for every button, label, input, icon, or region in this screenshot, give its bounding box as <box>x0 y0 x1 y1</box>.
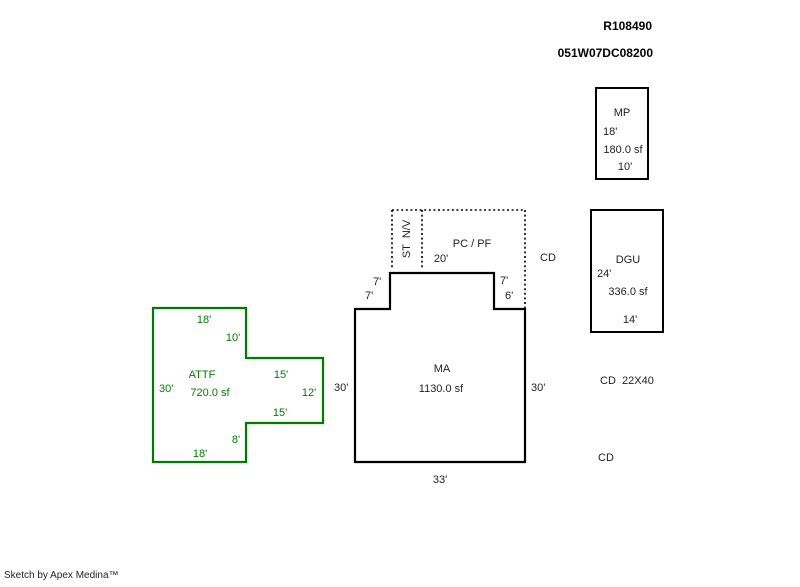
attf-area: 720.0 sf <box>190 387 229 399</box>
ma-bottom-width-dim: 33' <box>433 474 447 486</box>
parcel-id: 051W07DC08200 <box>558 46 653 60</box>
dgu-height-dim: 24' <box>597 268 611 280</box>
ma-left-step-height-dim: 7' <box>373 276 381 288</box>
mp-width-dim: 10' <box>618 161 632 173</box>
attf-arm-right-dim: 12' <box>302 387 316 399</box>
dgu-area: 336.0 sf <box>608 286 647 298</box>
sketch-linework <box>0 0 800 587</box>
attf-lower-right-dim: 8' <box>232 434 240 446</box>
attf-label: ATTF <box>189 369 216 381</box>
cd-upper-annotation: CD <box>540 252 556 264</box>
ma-right-step-height-dim: 7' <box>500 275 508 287</box>
attf-upper-right-dim: 10' <box>226 332 240 344</box>
pcpf-width-dim: 20' <box>434 253 448 265</box>
ma-label: MA <box>434 363 451 375</box>
ma-right-step-width-dim: 6' <box>505 290 513 302</box>
cd-lower-annotation: CD <box>598 452 614 464</box>
attf-top-width-dim: 18' <box>197 314 211 326</box>
dgu-label: DGU <box>616 254 640 266</box>
dgu-width-dim: 14' <box>623 314 637 326</box>
attf-arm-bottom-dim: 15' <box>273 407 287 419</box>
pcpf-label: PC / PF <box>453 238 492 250</box>
sketch-credit: Sketch by Apex Medina™ <box>4 570 119 581</box>
mp-area: 180.0 sf <box>603 144 642 156</box>
attf-bottom-width-dim: 18' <box>193 448 207 460</box>
mp-height-dim: 18' <box>603 126 617 138</box>
ma-left-step-width-dim: 7' <box>365 290 373 302</box>
ma-right-side-dim: 30' <box>531 382 545 394</box>
pcpf-strip-label: ST N/V <box>401 220 413 258</box>
mp-label: MP <box>614 107 631 119</box>
record-id: R108490 <box>603 19 652 33</box>
sketch-canvas: R108490 051W07DC08200 MP 18' 180.0 sf 10… <box>0 0 800 587</box>
ma-area: 1130.0 sf <box>419 383 463 395</box>
attf-arm-top-dim: 15' <box>274 369 288 381</box>
ma-left-side-dim: 30' <box>334 382 348 394</box>
attf-left-side-dim: 30' <box>159 383 173 395</box>
cd-dimensions-annotation: CD 22X40 <box>600 375 654 387</box>
